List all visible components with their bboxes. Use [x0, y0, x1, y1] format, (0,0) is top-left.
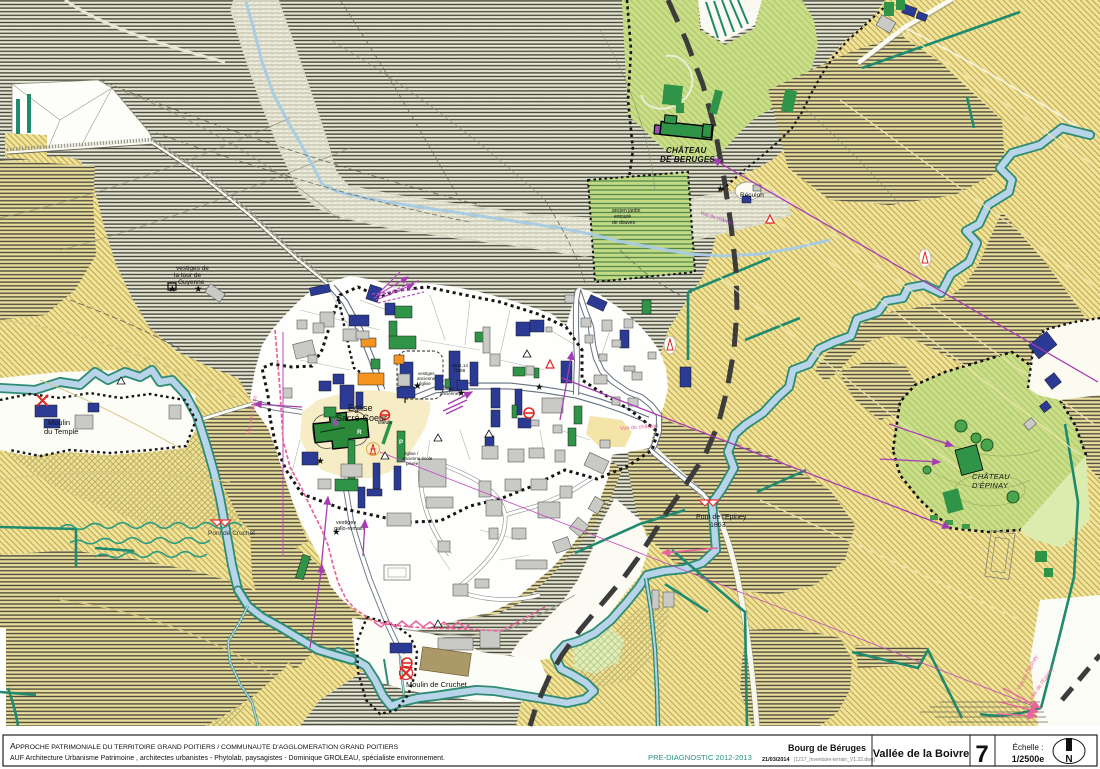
svg-text:gallo-romain: gallo-romain: [334, 526, 364, 532]
svg-text:Moulin: Moulin: [48, 418, 70, 427]
svg-text:R: R: [357, 429, 362, 436]
svg-text:★: ★: [316, 456, 325, 467]
svg-text:[1217_Inventaire-terrain_V1.22: [1217_Inventaire-terrain_V1.22.dwg]: [794, 757, 875, 763]
svg-text:7: 7: [975, 741, 988, 768]
svg-text:vestiges de: vestiges de: [176, 265, 209, 272]
svg-text:anciennes: anciennes: [440, 391, 461, 396]
svg-text:Pont de Cruchet: Pont de Cruchet: [208, 530, 255, 537]
svg-text:Moulin de Cruchet: Moulin de Cruchet: [406, 680, 468, 689]
svg-text:Eglise: Eglise: [348, 403, 373, 413]
svg-text:1863: 1863: [710, 522, 726, 529]
svg-text:DE BERUGES: DE BERUGES: [660, 155, 715, 164]
svg-text:Échelle :: Échelle :: [1013, 743, 1044, 752]
svg-text:★: ★: [535, 382, 544, 393]
svg-text:★: ★: [716, 184, 725, 195]
svg-text:D'ÉPINAY: D'ÉPINAY: [972, 481, 1009, 490]
svg-text:P: P: [399, 440, 403, 446]
svg-text:la tour de: la tour de: [174, 272, 201, 279]
svg-text:21/03/2014: 21/03/2014: [762, 757, 790, 763]
svg-text:Pont de l'Epiney: Pont de l'Epiney: [696, 514, 747, 521]
svg-text:Guyenne: Guyenne: [178, 279, 205, 286]
svg-text:1/2500e: 1/2500e: [1012, 754, 1045, 764]
svg-text:CHÂTEAU: CHÂTEAU: [666, 146, 707, 155]
svg-text:privée: privée: [406, 461, 419, 466]
svg-text:église: église: [419, 381, 431, 386]
svg-text:de douves: de douves: [612, 220, 636, 226]
svg-text:Réculon: Réculon: [740, 192, 764, 199]
svg-text:AUF Architecture Urbanisme Pat: AUF Architecture Urbanisme Patrimoine , …: [10, 755, 445, 762]
svg-text:N: N: [1065, 754, 1072, 765]
svg-text:Vallée de la Boivre: Vallée de la Boivre: [873, 748, 970, 760]
svg-text:du Temple: du Temple: [44, 427, 78, 436]
svg-text:Bourg de Béruges: Bourg de Béruges: [788, 743, 866, 753]
svg-text:/1958: /1958: [454, 368, 466, 373]
svg-text:PRE-DIAGNOSTIC 2012-2013: PRE-DIAGNOSTIC 2012-2013: [648, 753, 752, 762]
svg-text:tilleuls: tilleuls: [378, 420, 392, 426]
svg-text:CHÂTEAU: CHÂTEAU: [972, 472, 1010, 481]
